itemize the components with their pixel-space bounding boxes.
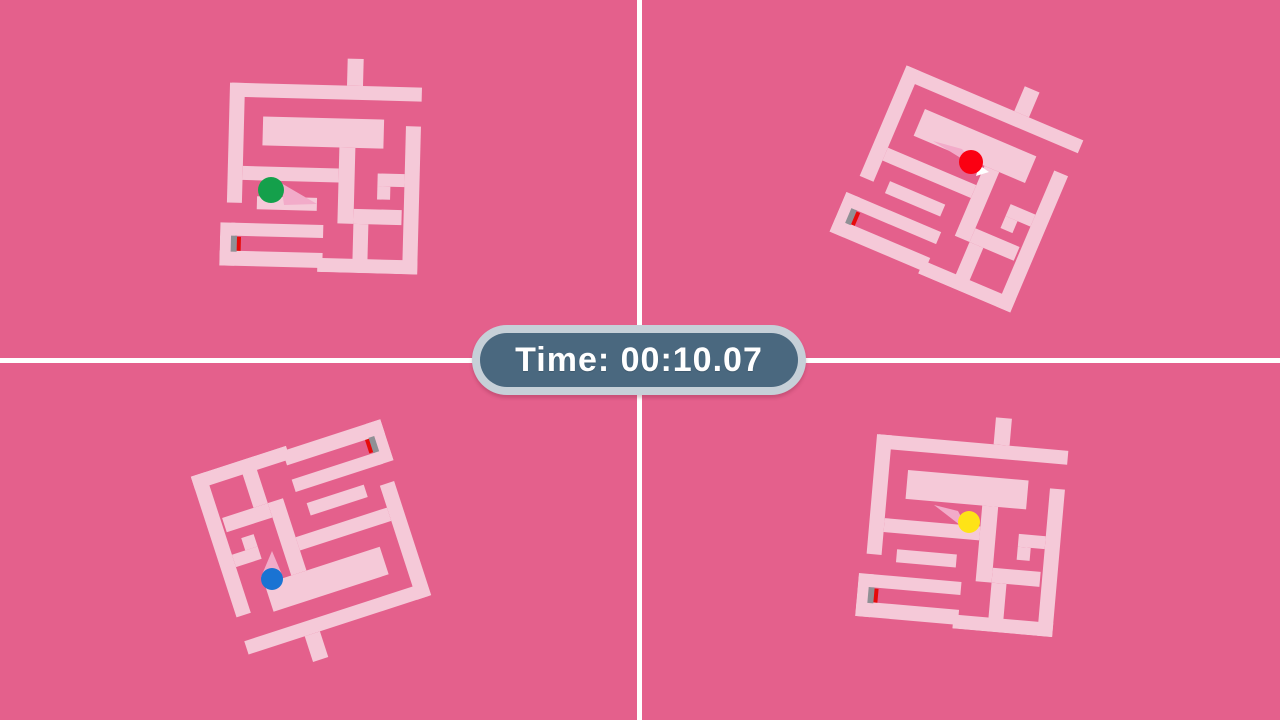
maze-board-bottom-left	[189, 415, 447, 686]
maze-top-right	[828, 33, 1098, 314]
maze-board-bottom-right	[855, 401, 1073, 638]
maze-bottom-left	[189, 415, 447, 686]
timer-pill-inner: Time: 00:10.07	[480, 333, 798, 387]
timer-pill: Time: 00:10.07	[472, 325, 806, 395]
game-screen: Time: 00:10.07	[0, 0, 1280, 720]
maze-board-top-left	[219, 49, 425, 274]
timer-text: Time: 00:10.07	[515, 341, 763, 380]
maze-top-left	[219, 49, 425, 274]
maze-bottom-right	[855, 401, 1073, 638]
maze-board-top-right	[828, 33, 1098, 314]
